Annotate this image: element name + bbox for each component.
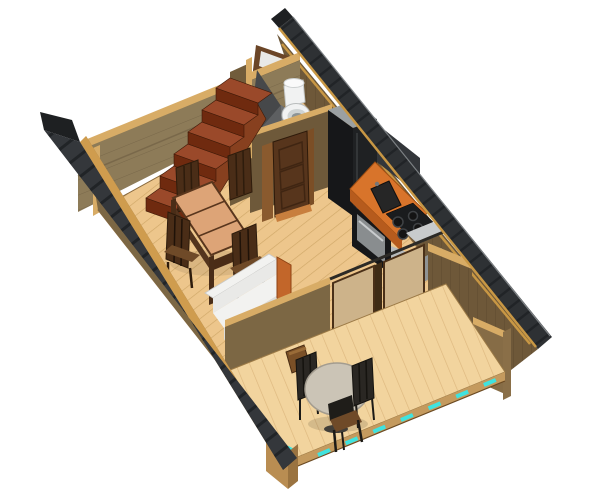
door-jamb-left [262, 142, 273, 222]
render-viewport [0, 0, 600, 500]
fridge-front [328, 110, 353, 216]
isometric-floorplan-render [0, 0, 600, 500]
toilet-tank-lid [284, 79, 304, 88]
dining-chair-back-right [228, 148, 252, 200]
burner [393, 217, 403, 227]
burner [398, 229, 408, 239]
burner [409, 212, 418, 221]
east-corner-post [503, 328, 511, 400]
sink-faucet [375, 182, 379, 186]
